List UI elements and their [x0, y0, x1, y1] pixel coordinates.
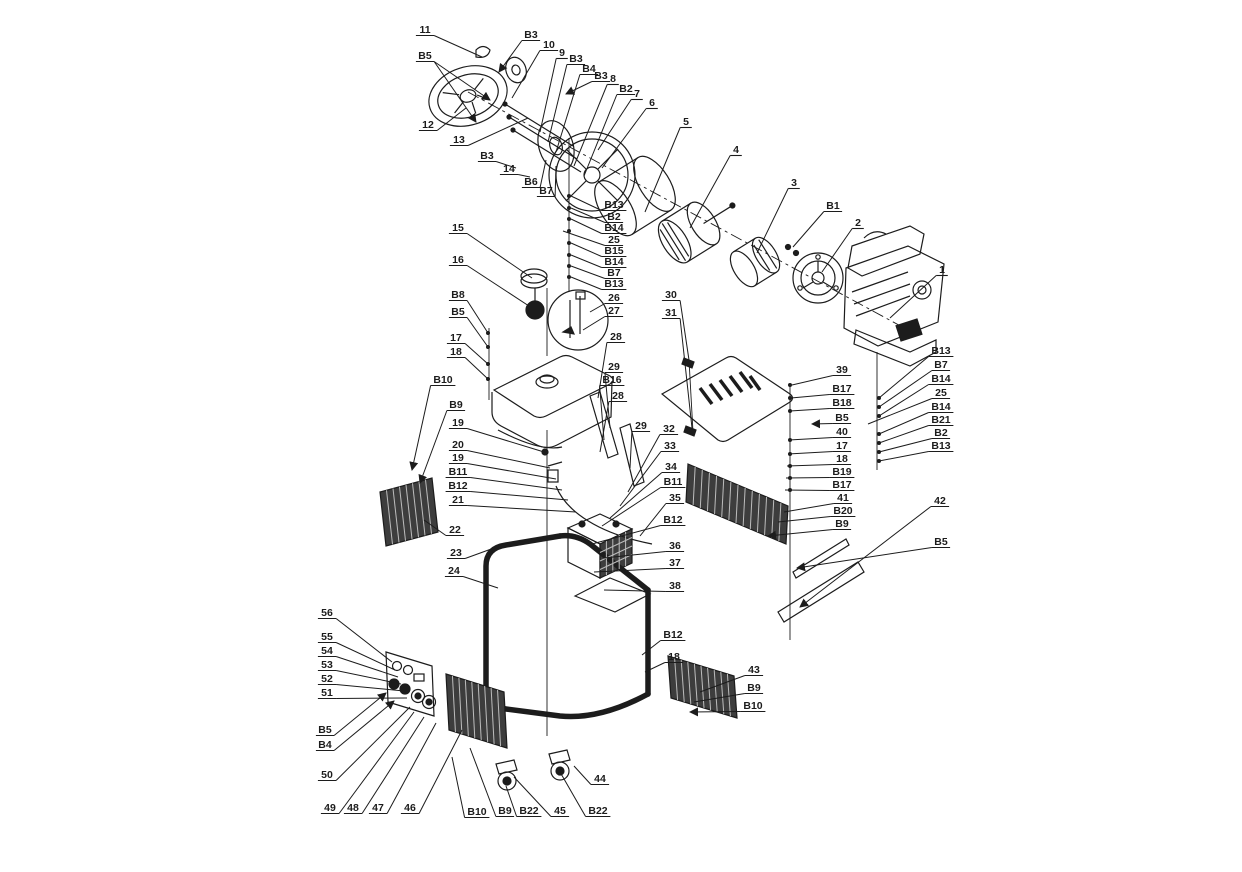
- callout-label: 5: [683, 116, 689, 128]
- callout-label: B13: [604, 278, 623, 290]
- callout-label: 48: [347, 802, 359, 814]
- callout-label: B9: [747, 682, 761, 694]
- callout-label: B20: [833, 505, 852, 517]
- callout-label: B11: [449, 466, 468, 478]
- callout-label: 4: [733, 144, 739, 156]
- fastener-dot: [567, 217, 571, 221]
- callout-label: 23: [450, 547, 462, 559]
- callout-label: 29: [608, 361, 620, 373]
- guard-strip: [778, 562, 864, 622]
- part-callout-B10: B10: [452, 757, 489, 818]
- callout-label: 46: [404, 802, 416, 814]
- fuel-valve: [542, 449, 652, 544]
- callout-label: 49: [324, 802, 336, 814]
- part-callout-24: 24: [445, 565, 498, 588]
- callout-label: 6: [649, 97, 655, 109]
- callout-label: B5: [318, 724, 332, 736]
- part-callout-34: 34: [610, 461, 680, 518]
- callout-label: B2: [934, 427, 948, 439]
- part-callout-B10: B10: [412, 374, 455, 470]
- callout-label: B13: [931, 440, 950, 452]
- callout-label: B22: [588, 805, 607, 817]
- callout-label: B13: [931, 345, 950, 357]
- fastener-dot: [788, 383, 792, 387]
- callout-label: 36: [669, 540, 681, 552]
- callout-label: 12: [422, 119, 434, 131]
- callout-label: B3: [524, 29, 538, 41]
- part-callout-B12: B12: [446, 480, 568, 500]
- part-callout-B17: B17: [791, 383, 854, 398]
- callout-label: B7: [539, 185, 553, 197]
- caster-wheel: [549, 750, 570, 780]
- part-callout-14: 14: [500, 163, 530, 177]
- callout-label: B5: [451, 306, 465, 318]
- engine: [844, 226, 944, 366]
- control-panel: [386, 652, 436, 716]
- callout-label: 42: [934, 495, 946, 507]
- part-callout-B17: B17: [785, 479, 854, 491]
- part-callout-B6: B6: [522, 160, 546, 188]
- callout-label: 47: [372, 802, 384, 814]
- part-callout-B5: B5: [812, 412, 851, 424]
- part-callout-42: 42: [800, 495, 949, 607]
- callout-label: B5: [418, 50, 432, 62]
- callout-label: 51: [321, 687, 333, 699]
- callout-label: 19: [452, 452, 464, 464]
- callout-label: 30: [665, 289, 677, 301]
- part-callout-31: 31: [662, 307, 692, 428]
- callout-label: 1: [939, 264, 945, 276]
- callout-label: 29: [635, 420, 647, 432]
- callout-label: B3: [480, 150, 494, 162]
- callout-label: B9: [449, 399, 463, 411]
- callout-label: B18: [832, 397, 851, 409]
- part-callout-B2: B2: [584, 83, 635, 176]
- callout-label: 28: [610, 331, 622, 343]
- callout-label: B12: [663, 629, 682, 641]
- fuel-tank: [492, 356, 613, 448]
- callout-label: B12: [448, 480, 467, 492]
- callout-label: 45: [554, 805, 566, 817]
- callout-label: B1: [826, 200, 840, 212]
- callout-label: 3: [791, 177, 797, 189]
- exploded-parts-diagram: 11B51213B3109B3B4B38B276543B1213031B314B…: [0, 0, 1242, 872]
- callout-label: 56: [321, 607, 333, 619]
- part-callout-27: 27: [583, 305, 623, 330]
- part-callout-49: 49: [321, 712, 414, 814]
- callout-label: 31: [665, 307, 677, 319]
- part-callout-48: 48: [344, 717, 424, 814]
- callout-label: 44: [594, 773, 606, 785]
- callout-label: 53: [321, 659, 333, 671]
- part-callout-5: 5: [645, 116, 692, 212]
- callout-label: B5: [934, 536, 948, 548]
- callout-label: B3: [569, 53, 583, 65]
- callout-label: B4: [318, 739, 332, 751]
- callout-label: B2: [619, 83, 633, 95]
- callout-label: 13: [453, 134, 465, 146]
- callout-label: 9: [559, 47, 565, 59]
- callout-label: 24: [448, 565, 460, 577]
- part-callout-17: 17: [788, 440, 851, 454]
- louver-panels: [380, 464, 788, 748]
- callout-label: 40: [836, 426, 848, 438]
- stator: [725, 233, 785, 291]
- part-callout-B3: B3: [548, 53, 585, 142]
- callout-label: 19: [452, 417, 464, 429]
- callout-label: 33: [664, 440, 676, 452]
- bolt-b1: [794, 251, 799, 256]
- callout-label: 17: [836, 440, 848, 452]
- callout-label: 50: [321, 769, 333, 781]
- fuel-cap: [521, 269, 547, 301]
- part-callout-44: 44: [574, 766, 609, 785]
- part-callout-B3: B3: [499, 29, 540, 72]
- callout-label: 54: [321, 645, 333, 657]
- hardware-lines: [486, 138, 881, 736]
- part-callout-30: 30: [662, 289, 689, 360]
- callout-label: 55: [321, 631, 333, 643]
- part-callout-B18: B18: [790, 397, 854, 411]
- part-callout-B14: B14: [571, 219, 626, 234]
- fastener-dot: [567, 241, 571, 245]
- callout-label: 34: [665, 461, 677, 473]
- alternator-drum: [586, 150, 683, 243]
- callout-label: 22: [449, 524, 461, 536]
- callout-label: 35: [669, 492, 681, 504]
- recoil-starter: [421, 56, 515, 136]
- part-callout-B5: B5: [316, 693, 386, 736]
- fuel-filter: [526, 301, 544, 319]
- part-callout-40: 40: [789, 426, 851, 440]
- callout-label: 20: [452, 439, 464, 451]
- callout-label: B13: [604, 199, 623, 211]
- part-callout-B15: B15: [571, 243, 626, 257]
- callout-label: B19: [832, 466, 851, 478]
- part-callout-6: 6: [602, 97, 658, 168]
- callout-label: B14: [931, 373, 950, 385]
- callout-label: B14: [931, 401, 950, 413]
- callout-label: 10: [543, 39, 555, 51]
- callout-label: 27: [608, 305, 620, 317]
- callout-label: 16: [452, 254, 464, 266]
- caster-wheel: [496, 760, 517, 790]
- callout-label: B17: [832, 383, 851, 395]
- callout-label: 39: [836, 364, 848, 376]
- callout-label: 11: [419, 24, 430, 36]
- callout-label: B3: [594, 70, 608, 82]
- callout-label: 18: [450, 346, 462, 358]
- callout-label: B10: [467, 806, 486, 818]
- callout-label: B7: [934, 359, 948, 371]
- callout-label: 52: [321, 673, 333, 685]
- side-louver-panel: [380, 478, 438, 546]
- callout-label: 7: [634, 88, 640, 100]
- callout-label: 25: [935, 387, 947, 399]
- callout-label: 38: [669, 580, 681, 592]
- part-callout-B13: B13: [879, 440, 953, 461]
- callout-label: B14: [604, 222, 623, 234]
- callout-label: B6: [524, 176, 538, 188]
- callout-label: 17: [450, 332, 462, 344]
- callout-label: B11: [664, 476, 683, 488]
- fastener-dot: [567, 194, 571, 198]
- callout-label: B9: [835, 518, 849, 530]
- exploded-parts-diagram-page: 11B51213B3109B3B4B38B276543B1213031B314B…: [0, 0, 1242, 872]
- callout-label: B10: [743, 700, 762, 712]
- diagram-art: [386, 47, 944, 791]
- callout-label: B12: [663, 514, 682, 526]
- part-callout-18: 18: [787, 453, 851, 466]
- starter-cup: [502, 55, 529, 86]
- callout-label: B16: [602, 374, 621, 386]
- callout-label: B22: [519, 805, 538, 817]
- end-bracket: [793, 253, 843, 303]
- callout-label: 18: [836, 453, 848, 465]
- rotor: [652, 184, 747, 268]
- callout-label: 8: [610, 73, 616, 85]
- fastener-dot: [567, 253, 571, 257]
- callout-label: 37: [669, 557, 681, 569]
- callout-label: 2: [855, 217, 861, 229]
- callout-label: 43: [748, 664, 760, 676]
- callout-label: 41: [837, 492, 849, 504]
- guard-strip: [793, 539, 849, 578]
- part-callout-18: 18: [447, 346, 488, 379]
- part-callout-39: 39: [792, 364, 851, 385]
- fastener-dot: [567, 264, 571, 268]
- callout-label: B10: [433, 374, 452, 386]
- rear-louver-panel: [686, 464, 788, 544]
- callout-label: 18: [668, 651, 680, 663]
- top-cover: [662, 357, 793, 442]
- callout-label: 14: [503, 163, 515, 175]
- callout-label: B9: [498, 805, 512, 817]
- callout-label: 32: [663, 423, 675, 435]
- part-callout-21: 21: [449, 494, 576, 512]
- part-callout-B1: B1: [793, 200, 842, 247]
- callout-label: B5: [835, 412, 849, 424]
- part-callout-B19: B19: [786, 466, 854, 478]
- part-callout-29: 29: [630, 420, 650, 468]
- callout-label: B21: [931, 414, 950, 426]
- part-callout-15: 15: [449, 222, 532, 278]
- bolt-b1: [786, 245, 791, 250]
- callout-label: 28: [612, 390, 624, 402]
- callout-label: B17: [832, 479, 851, 491]
- callout-label: 26: [608, 292, 620, 304]
- part-callout-B13: B13: [571, 277, 626, 290]
- front-louver-panel: [446, 674, 507, 748]
- callout-label: 21: [452, 494, 464, 506]
- part-callout-3: 3: [757, 177, 800, 253]
- fastener-dot: [567, 206, 571, 210]
- callout-label: B8: [451, 289, 465, 301]
- bottom-louver-panel: [668, 656, 737, 718]
- part-callout-10: 10: [512, 39, 558, 98]
- fastener-dot: [567, 275, 571, 279]
- part-callout-B5: B5: [416, 50, 490, 122]
- callout-label: 15: [452, 222, 464, 234]
